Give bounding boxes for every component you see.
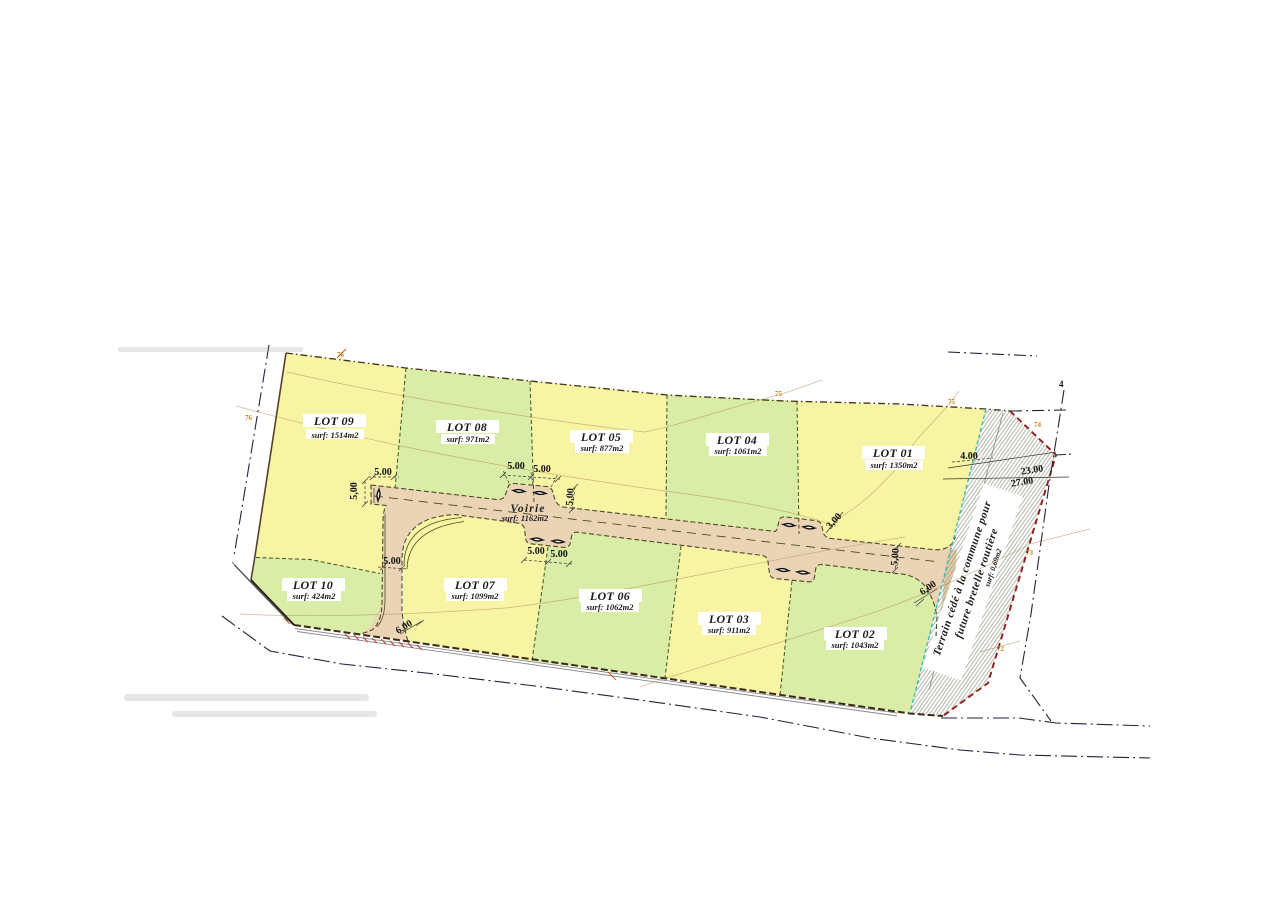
- svg-text:5.00: 5.00: [383, 556, 401, 567]
- svg-text:LOT 01: LOT 01: [872, 446, 913, 460]
- svg-text:73: 73: [1026, 549, 1034, 557]
- svg-text:LOT 09: LOT 09: [313, 414, 354, 428]
- svg-text:surf: 911m2: surf: 911m2: [707, 625, 751, 635]
- svg-text:4.00: 4.00: [960, 451, 978, 462]
- svg-text:LOT 04: LOT 04: [716, 433, 757, 447]
- svg-text:LOT 06: LOT 06: [589, 589, 630, 603]
- svg-text:5.00: 5.00: [533, 464, 551, 475]
- svg-text:72: 72: [997, 645, 1005, 653]
- svg-text:surf: 1350m2: surf: 1350m2: [870, 460, 919, 470]
- svg-text:5,00: 5,00: [349, 482, 360, 500]
- svg-text:75: 75: [775, 390, 783, 398]
- svg-text:4: 4: [1059, 379, 1064, 389]
- svg-text:74: 74: [1034, 421, 1042, 429]
- svg-text:5,00: 5,00: [889, 548, 901, 566]
- svg-text:LOT 08: LOT 08: [446, 420, 487, 434]
- svg-text:75: 75: [948, 398, 956, 406]
- svg-text:surf: 1062m2: surf: 1062m2: [586, 602, 635, 612]
- svg-text:LOT 05: LOT 05: [580, 430, 621, 444]
- svg-text:surf: 1514m2: surf: 1514m2: [311, 430, 360, 440]
- svg-text:surf: 1043m2: surf: 1043m2: [831, 640, 880, 650]
- svg-text:LOT 07: LOT 07: [454, 578, 496, 592]
- svg-text:5.00: 5.00: [507, 461, 525, 472]
- svg-text:76: 76: [245, 414, 253, 422]
- svg-text:surf: 971m2: surf: 971m2: [446, 434, 490, 444]
- svg-text:5.00: 5.00: [550, 549, 568, 560]
- svg-text:LOT 10: LOT 10: [292, 578, 333, 592]
- svg-text:surf: 424m2: surf: 424m2: [292, 591, 336, 601]
- svg-text:surf: 1099m2: surf: 1099m2: [451, 591, 500, 601]
- svg-text:surf: 877m2: surf: 877m2: [580, 443, 624, 453]
- svg-text:5.00: 5.00: [527, 546, 545, 557]
- svg-text:surf: 1061m2: surf: 1061m2: [714, 446, 763, 456]
- svg-text:5.00: 5.00: [374, 467, 392, 478]
- svg-text:LOT 02: LOT 02: [834, 627, 875, 641]
- svg-text:5,00: 5,00: [564, 488, 576, 506]
- svg-text:surf: 1162m2: surf: 1162m2: [501, 513, 549, 523]
- svg-text:LOT 03: LOT 03: [708, 612, 749, 626]
